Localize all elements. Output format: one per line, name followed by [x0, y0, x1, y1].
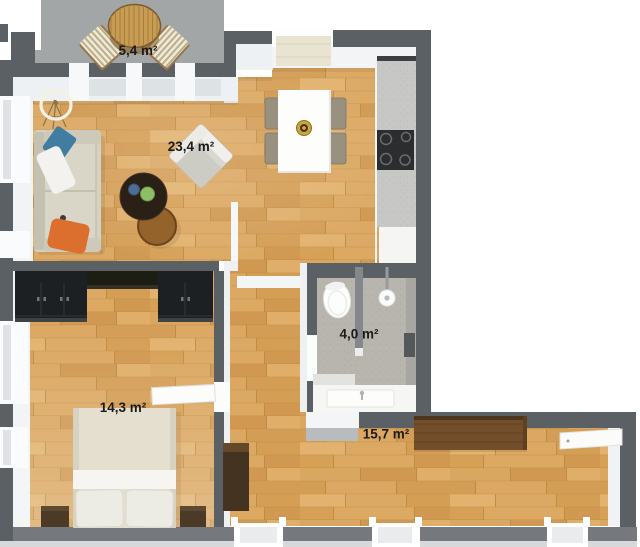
svg-text:14,3 m²: 14,3 m²	[100, 400, 147, 415]
svg-text:23,4 m²: 23,4 m²	[168, 139, 215, 154]
svg-text:15,7 m²: 15,7 m²	[363, 427, 410, 442]
svg-text:4,0 m²: 4,0 m²	[339, 327, 379, 342]
svg-text:5,4 m²: 5,4 m²	[118, 43, 158, 58]
